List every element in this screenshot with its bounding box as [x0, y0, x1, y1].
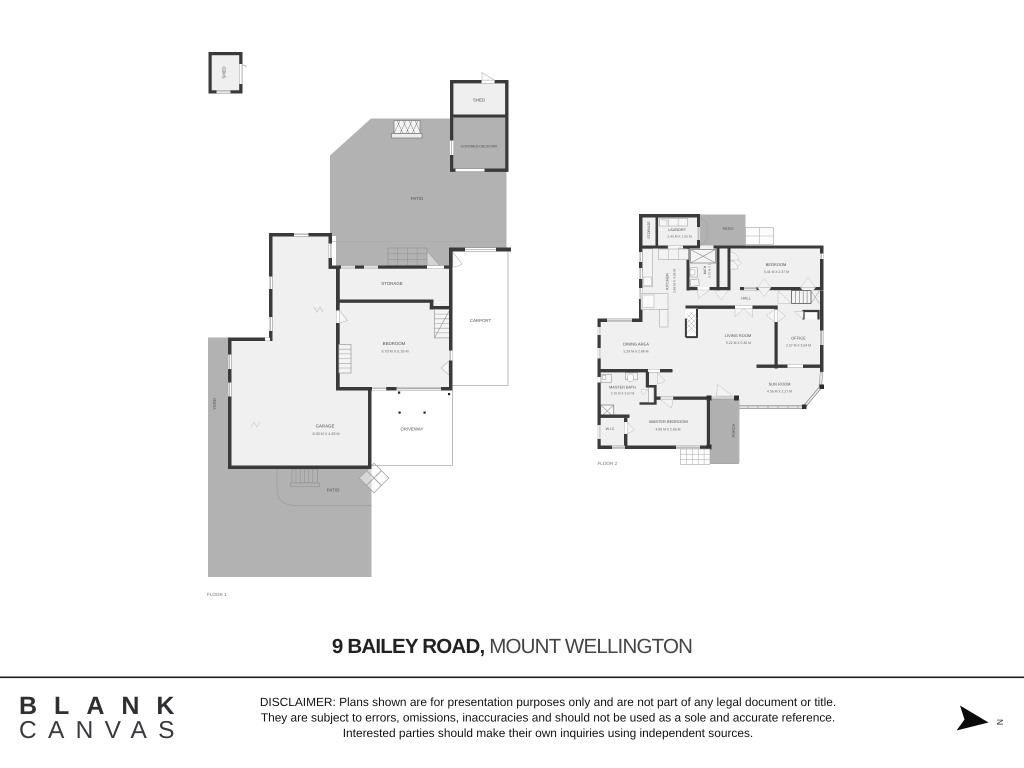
svg-text:BEDROOM: BEDROOM [383, 341, 406, 346]
svg-text:5.22 M X 5.30 M: 5.22 M X 5.30 M [726, 341, 751, 345]
svg-text:DINING AREA: DINING AREA [623, 342, 649, 347]
svg-text:LIVING ROOM: LIVING ROOM [725, 333, 752, 338]
svg-text:W.I.C: W.I.C [606, 427, 615, 431]
svg-text:2.76 M X 2.67 M: 2.76 M X 2.67 M [611, 392, 635, 396]
svg-text:LAUNDRY: LAUNDRY [668, 228, 687, 232]
svg-text:5.29 M X 2.88 M: 5.29 M X 2.88 M [624, 350, 649, 354]
svg-text:GARAGE: GARAGE [316, 424, 335, 429]
svg-text:PORCH: PORCH [732, 423, 736, 437]
svg-text:They are subject to errors, om: They are subject to errors, omissions, i… [261, 711, 835, 725]
svg-text:FLOOR 1: FLOOR 1 [207, 592, 227, 597]
svg-text:BLANK: BLANK [19, 692, 192, 720]
svg-text:N: N [995, 719, 1005, 725]
svg-text:DRIVEWAY: DRIVEWAY [401, 427, 424, 432]
svg-text:PATIO: PATIO [327, 488, 340, 493]
svg-text:9 BAILEY ROAD, MOUNT WELLINGTO: 9 BAILEY ROAD, MOUNT WELLINGTON [332, 635, 692, 658]
svg-text:MASTER BATH: MASTER BATH [609, 386, 636, 390]
svg-text:CANVAS: CANVAS [19, 717, 186, 744]
svg-text:5.41 M X 2.37 M: 5.41 M X 2.37 M [764, 270, 789, 274]
svg-text:SUN ROOM: SUN ROOM [769, 382, 791, 387]
svg-text:OFFICE: OFFICE [791, 336, 806, 341]
svg-text:COVERED DECK/SPA: COVERED DECK/SPA [461, 145, 498, 149]
svg-text:6.70 M X 5.16 M: 6.70 M X 5.16 M [381, 350, 408, 354]
svg-text:2.57 M X 3.54 M: 2.57 M X 3.54 M [786, 344, 811, 348]
svg-text:STORAGE: STORAGE [647, 221, 651, 239]
svg-text:4.56 M X 2.27 M: 4.56 M X 2.27 M [767, 390, 792, 394]
svg-text:PATIO: PATIO [411, 196, 424, 201]
svg-text:2.43 M X 1.80 M: 2.43 M X 1.80 M [667, 235, 691, 239]
svg-text:SHED: SHED [222, 66, 227, 78]
svg-text:CARPORT: CARPORT [470, 318, 492, 323]
svg-text:FLOOR 2: FLOOR 2 [598, 461, 618, 466]
svg-text:Interested parties should make: Interested parties should make their own… [343, 726, 753, 740]
svg-text:HALL: HALL [741, 297, 751, 301]
svg-text:SHED: SHED [473, 98, 485, 103]
svg-text:BATH: BATH [703, 265, 707, 274]
svg-text:PATIO: PATIO [723, 227, 734, 231]
svg-text:BEDROOM: BEDROOM [766, 262, 787, 267]
svg-text:3.48 M X 4.36 M: 3.48 M X 4.36 M [673, 269, 677, 293]
svg-text:8.30 M X 4.49 M: 8.30 M X 4.49 M [312, 432, 339, 436]
svg-text:STORAGE: STORAGE [381, 281, 402, 286]
svg-text:YARD: YARD [212, 398, 217, 410]
svg-text:MASTER BEDROOM: MASTER BEDROOM [649, 419, 687, 424]
svg-text:4.89 M X 2.86 M: 4.89 M X 2.86 M [656, 428, 681, 432]
svg-text:DISCLAIMER: Plans shown are fo: DISCLAIMER: Plans shown are for presenta… [260, 695, 836, 709]
svg-text:KITCHEN: KITCHEN [666, 273, 670, 290]
